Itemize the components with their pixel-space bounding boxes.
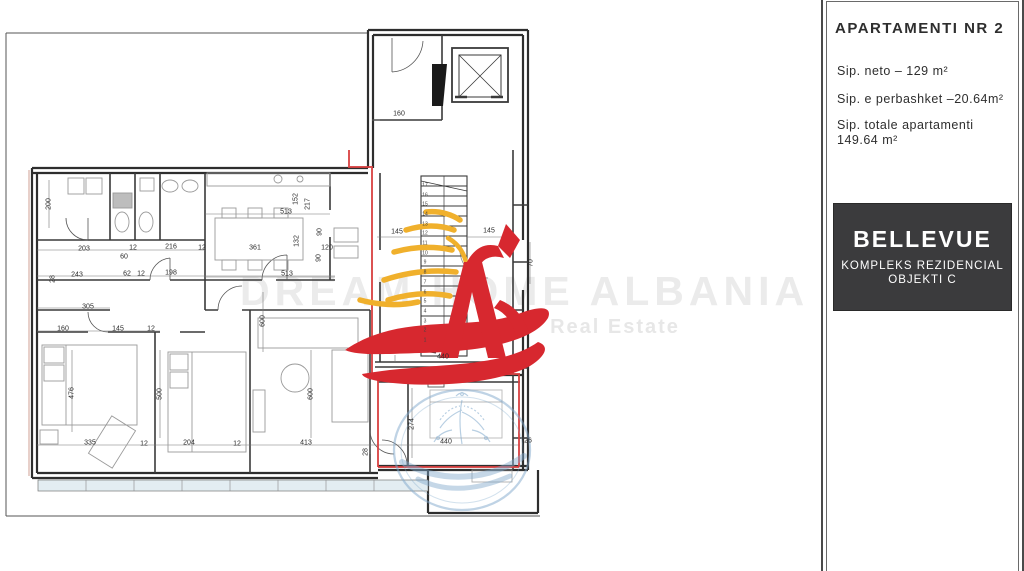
net-area-line: Sip. neto – 129 m² xyxy=(837,64,948,78)
dimension-label: 60 xyxy=(120,254,128,261)
interior-walls xyxy=(37,35,528,473)
apartment-title: APARTAMENTI NR 2 xyxy=(835,20,1004,37)
floor-plan-drawing xyxy=(0,0,824,571)
title-block-inner-border: APARTAMENTI NR 2 Sip. neto – 129 m² Sip.… xyxy=(826,1,1019,571)
dimension-label: 90 xyxy=(316,254,323,262)
dimension-label: 600 xyxy=(260,315,267,327)
dimension-label: 145 xyxy=(483,228,495,235)
common-area-line: Sip. e perbashket –20.64m² xyxy=(837,92,1004,106)
stair-step-number: 16 xyxy=(422,193,428,198)
stair-step-number: 14 xyxy=(422,212,428,217)
dimension-label: 243 xyxy=(71,272,83,279)
stair-step-number: 1 xyxy=(424,339,427,344)
dimension-label: 12 xyxy=(233,441,241,448)
dimension-label: 200 xyxy=(46,198,53,210)
stair-step-number: 9 xyxy=(424,261,427,266)
stair-step-number: 6 xyxy=(424,290,427,295)
balcony-strip xyxy=(38,480,428,491)
dimension-label: 476 xyxy=(69,387,76,399)
stair-step-number: 3 xyxy=(424,319,427,324)
brand-block: BELLEVUE KOMPLEKS REZIDENCIAL OBJEKTI C xyxy=(833,203,1012,311)
dimension-label: 28 xyxy=(363,448,370,456)
dimension-label: 305 xyxy=(82,304,94,311)
dimension-label: 440 xyxy=(437,354,449,361)
stamp xyxy=(394,390,530,510)
dimension-label: 28 xyxy=(50,275,57,283)
dimension-label: 413 xyxy=(300,440,312,447)
dimension-label: 198 xyxy=(165,270,177,277)
dimension-label: 335 xyxy=(84,440,96,447)
dimension-label: 62 xyxy=(123,271,131,278)
stair-step-number: 4 xyxy=(424,309,427,314)
stair-step-number: 5 xyxy=(424,300,427,305)
dimension-label: 12 xyxy=(140,441,148,448)
dimension-label: 152 xyxy=(293,193,300,205)
brand-name: BELLEVUE xyxy=(834,226,1011,253)
dimension-label: 132 xyxy=(294,235,301,247)
total-area-value: 149.64 m² xyxy=(837,133,898,147)
stair-step-number: 10 xyxy=(422,251,428,256)
dimension-label: 500 xyxy=(157,388,164,400)
dimension-label: 12 xyxy=(137,271,145,278)
dimension-label: 600 xyxy=(308,388,315,400)
dimension-label: 160 xyxy=(57,326,69,333)
scanned-floor-plan-sheet: DREAM HOME ALBANIA Real Estate xyxy=(0,0,1024,571)
dimension-label: 274 xyxy=(409,418,416,430)
dimension-label: 160 xyxy=(393,111,405,118)
dimension-label: 90 xyxy=(317,228,324,236)
stair-step-number: 13 xyxy=(422,222,428,227)
stair-step-number: 2 xyxy=(424,329,427,334)
dimension-label: 513 xyxy=(280,209,292,216)
dimension-label: 70 xyxy=(528,259,535,267)
dimension-label: 145 xyxy=(391,229,403,236)
dimension-label: 203 xyxy=(78,246,90,253)
stair-step-number: 12 xyxy=(422,232,428,237)
dimension-label: 361 xyxy=(249,245,261,252)
brand-subtitle-2: OBJEKTI C xyxy=(834,273,1011,287)
dimension-label: 204 xyxy=(183,440,195,447)
dimension-label: 145 xyxy=(112,326,124,333)
title-block-panel: APARTAMENTI NR 2 Sip. neto – 129 m² Sip.… xyxy=(821,0,1024,571)
stair-step-number: 15 xyxy=(422,203,428,208)
total-area-label: Sip. totale apartamenti xyxy=(837,118,974,132)
dimension-label: 440 xyxy=(440,439,452,446)
stair-step-number: 7 xyxy=(424,280,427,285)
stair-step-number: 11 xyxy=(422,242,427,247)
brand-subtitle-1: KOMPLEKS REZIDENCIAL xyxy=(834,259,1011,273)
dimension-label: 513 xyxy=(281,271,293,278)
dimension-label: 12 xyxy=(129,245,137,252)
elevator xyxy=(452,48,508,102)
dimension-label: 26 xyxy=(524,438,532,445)
stair-step-number: 8 xyxy=(424,271,427,276)
wall-poche xyxy=(432,64,447,106)
stair-step-number: 17 xyxy=(422,183,428,188)
dimension-label: 12 xyxy=(147,326,155,333)
dimension-label: 120 xyxy=(321,245,333,252)
dimension-label: 12 xyxy=(198,245,206,252)
dimension-label: 216 xyxy=(165,244,177,251)
dimension-label: 217 xyxy=(305,198,312,210)
